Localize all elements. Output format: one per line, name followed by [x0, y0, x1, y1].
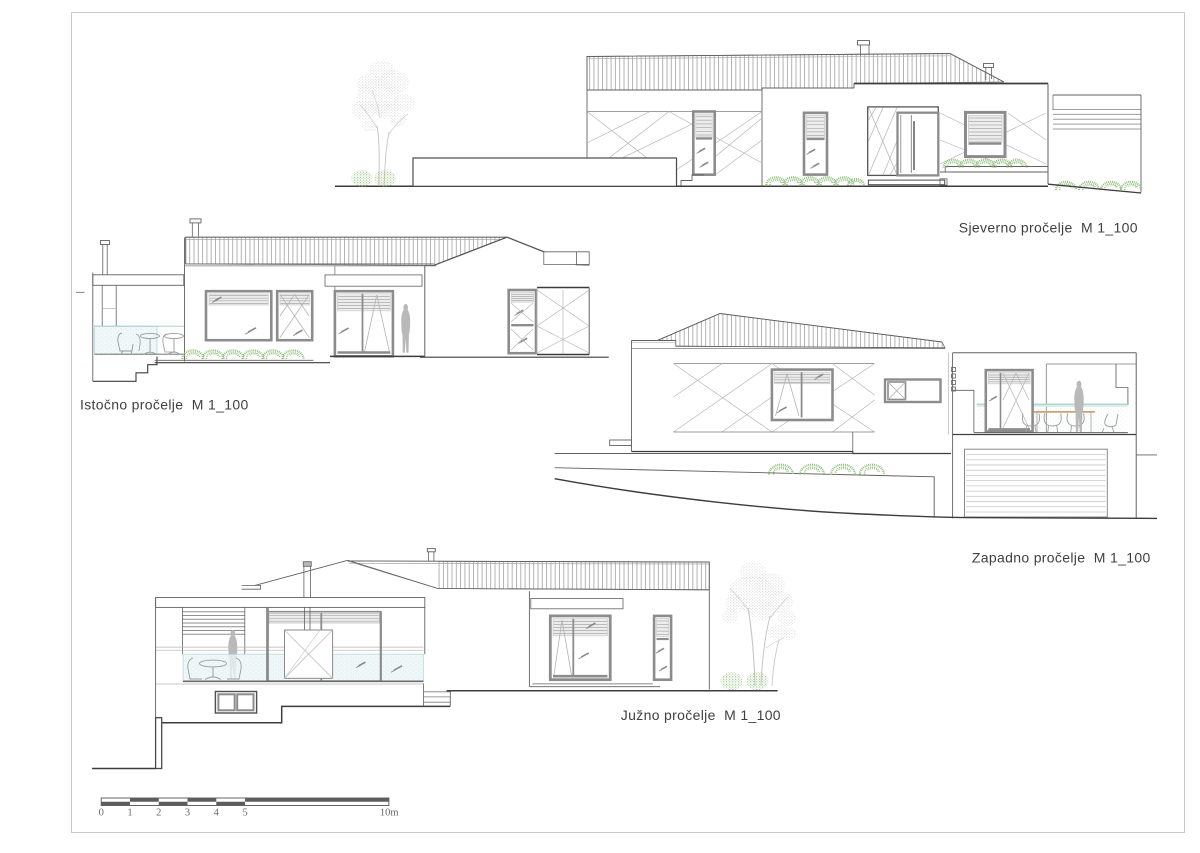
- svg-text:1: 1: [127, 808, 132, 819]
- svg-text:Južno pročelje M 1_100: Južno pročelje M 1_100: [621, 707, 781, 723]
- svg-text:3: 3: [185, 808, 190, 819]
- svg-text:Sjeverno pročelje M 1_100: Sjeverno pročelje M 1_100: [959, 220, 1138, 236]
- svg-text:2: 2: [156, 808, 161, 819]
- svg-text:5: 5: [242, 808, 247, 819]
- svg-text:4: 4: [214, 808, 220, 819]
- svg-text:0: 0: [99, 808, 104, 819]
- svg-text:Zapadno pročelje M 1_100: Zapadno pročelje M 1_100: [972, 550, 1151, 566]
- svg-text:Istočno pročelje M 1_100: Istočno pročelje M 1_100: [80, 397, 249, 413]
- svg-text:10m: 10m: [380, 808, 399, 819]
